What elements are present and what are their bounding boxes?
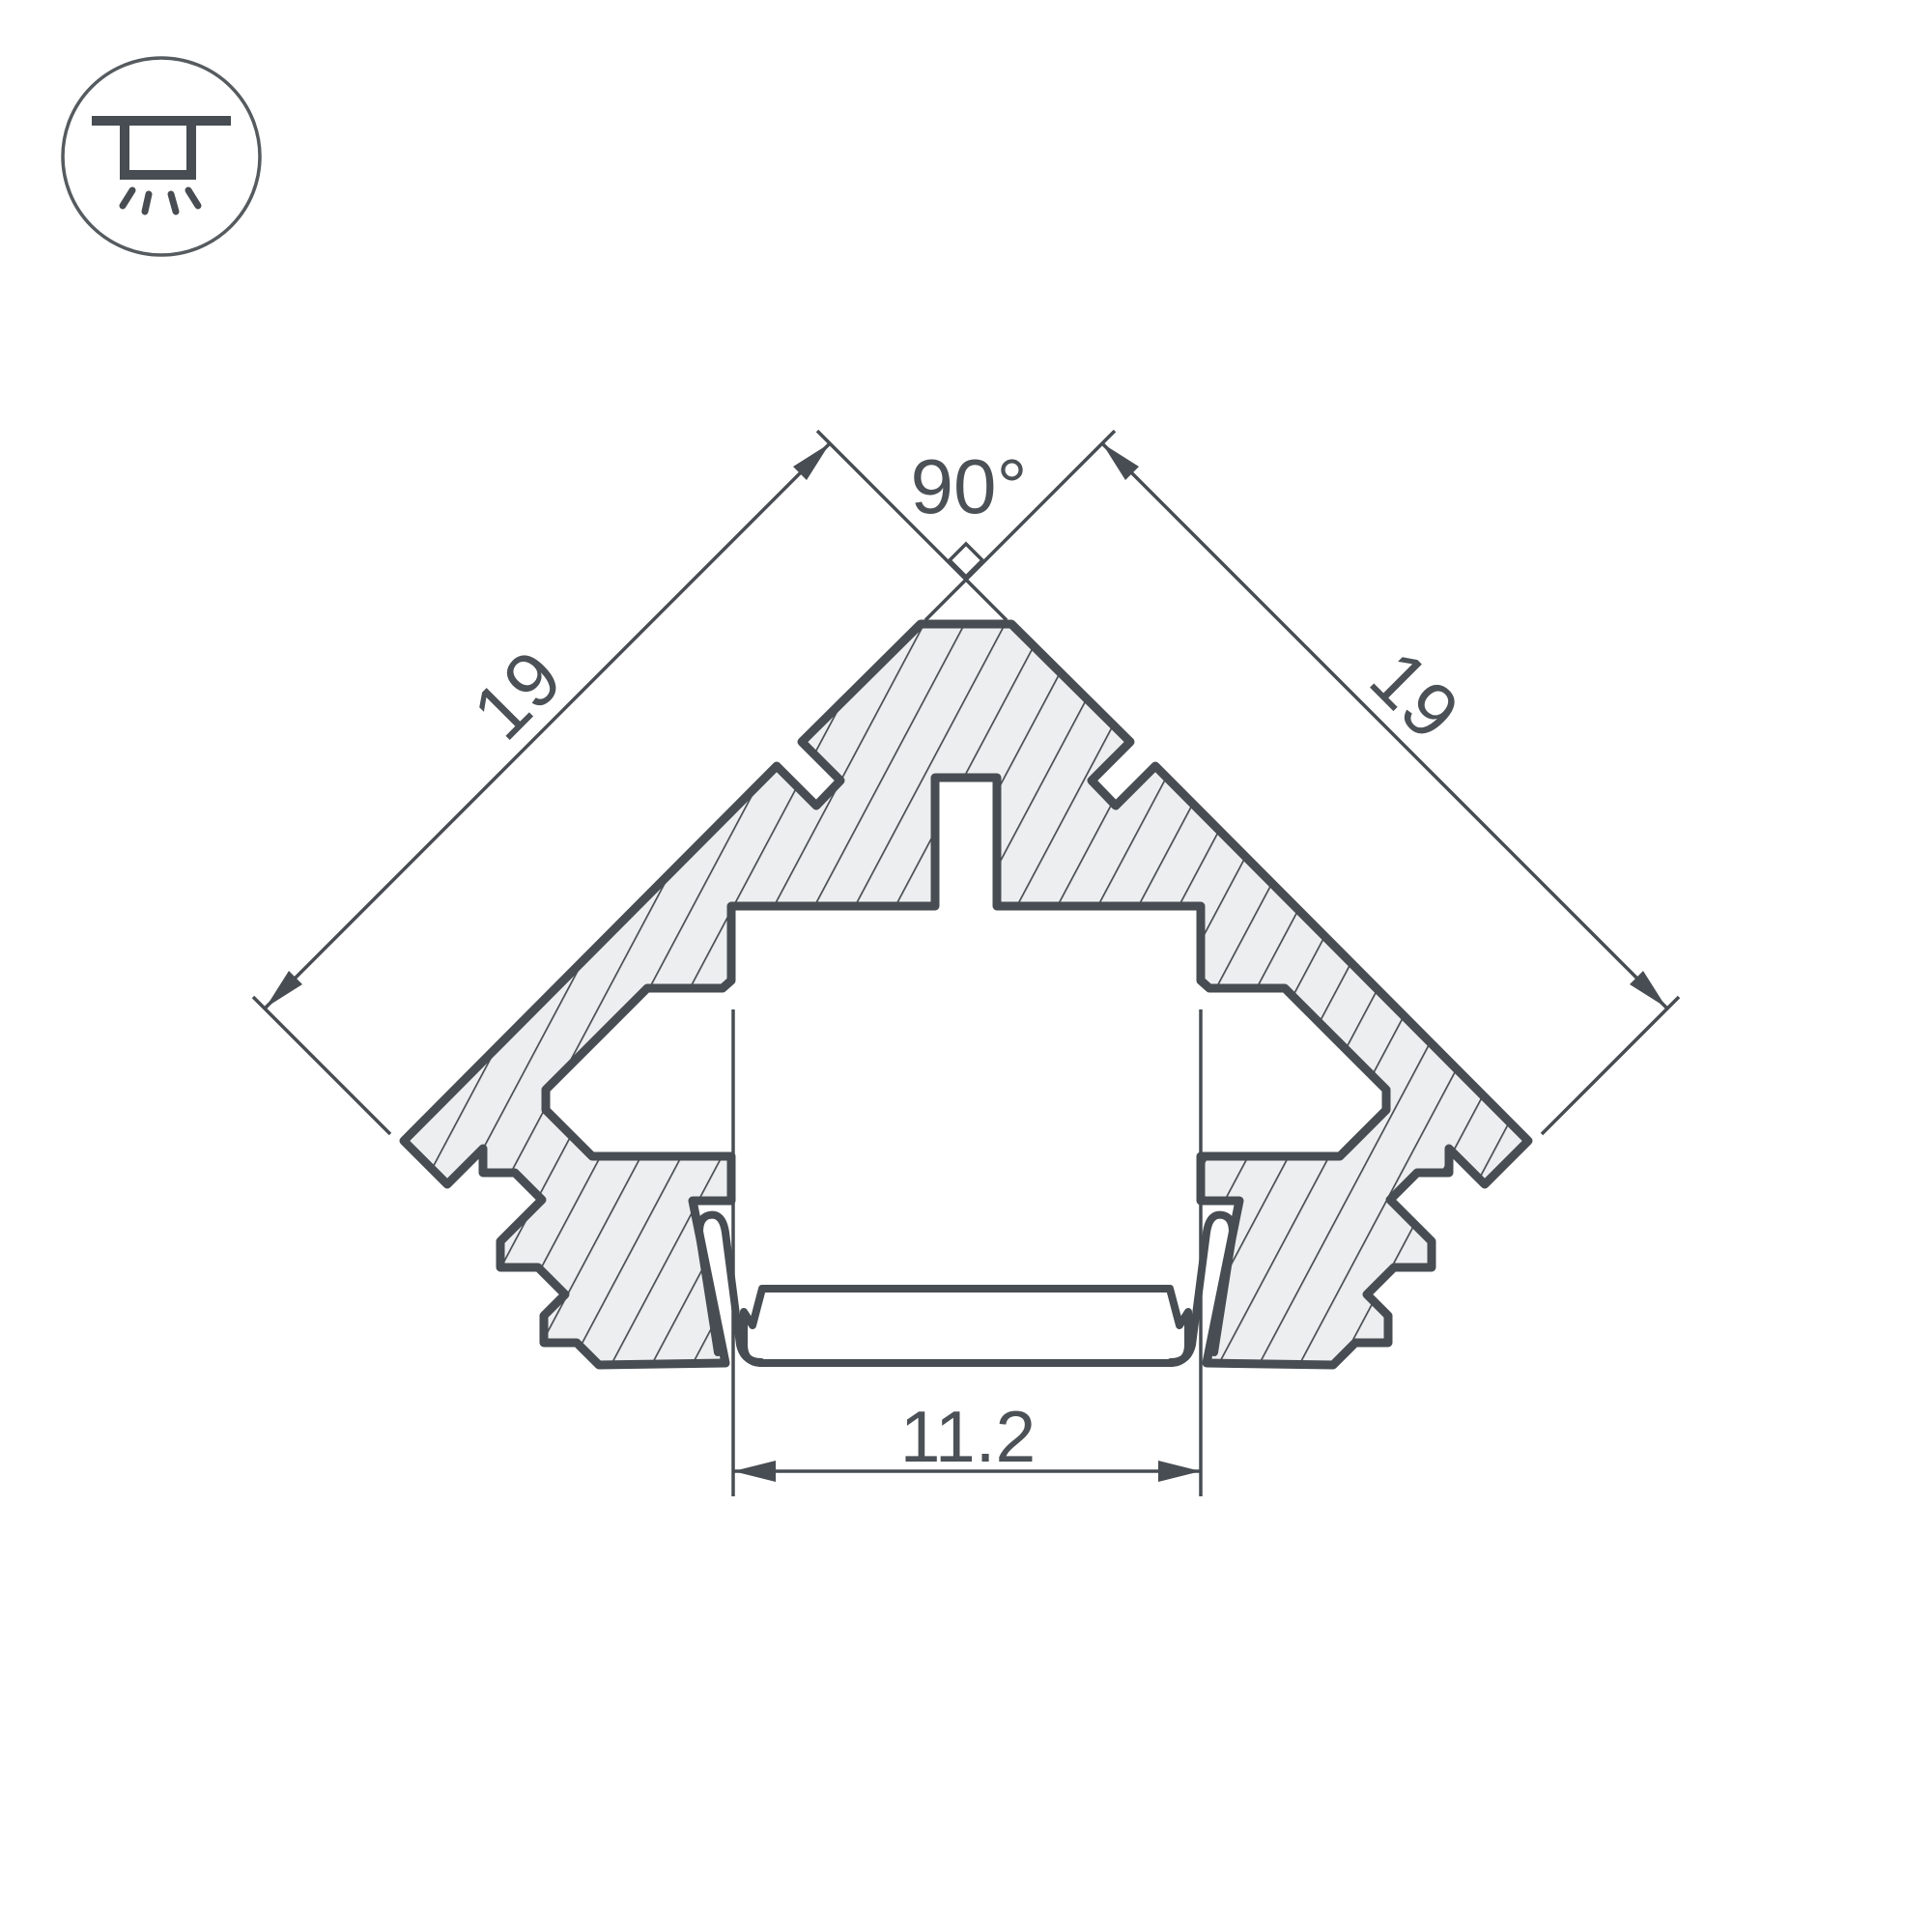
dimension-line-right bbox=[1102, 443, 1666, 1008]
dimension-label-left-side: 19 bbox=[456, 634, 578, 755]
extension-line-corner-right bbox=[1542, 997, 1679, 1134]
extension-line-corner-left bbox=[253, 997, 390, 1134]
dimension-line-left bbox=[266, 443, 830, 1008]
profile-body bbox=[404, 624, 1528, 1365]
dimension-label-opening-width: 11.2 bbox=[900, 1396, 1036, 1477]
diffuser bbox=[744, 1289, 1188, 1363]
icon-light-rays bbox=[123, 190, 198, 212]
technical-drawing: 19 19 90° 11.2 bbox=[0, 0, 1932, 1932]
icon-circle bbox=[63, 58, 260, 255]
arrowhead-icon bbox=[733, 1461, 776, 1482]
dimension-label-right-side: 19 bbox=[1354, 634, 1476, 755]
dimension-left-side: 19 bbox=[266, 443, 830, 1008]
page: 19 19 90° 11.2 bbox=[0, 0, 1932, 1932]
dimension-right-side: 19 bbox=[1102, 443, 1666, 1008]
right-angle-marker bbox=[950, 544, 982, 577]
dimension-label-apex-angle: 90° bbox=[911, 443, 1028, 529]
dimension-opening-width: 11.2 bbox=[733, 1396, 1201, 1482]
recessed-ceiling-light-icon bbox=[63, 58, 260, 255]
icon-fixture-box bbox=[125, 121, 191, 175]
arrowhead-icon bbox=[1158, 1461, 1201, 1482]
